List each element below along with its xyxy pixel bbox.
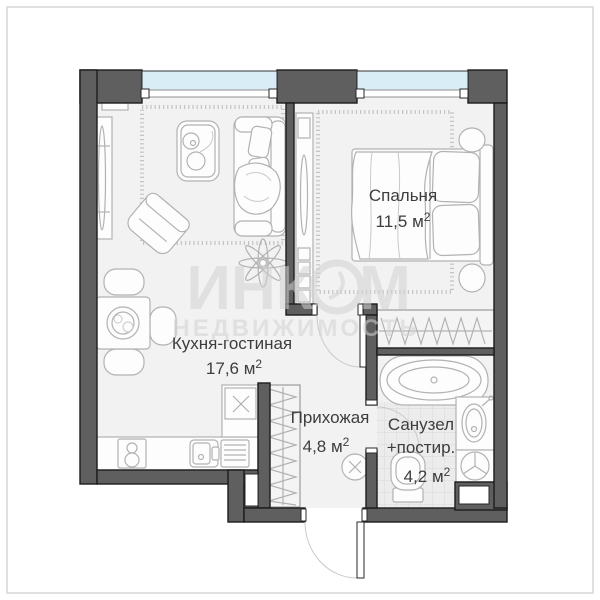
floor-plan-page: Кухня-гостиная 17,6 м2 Спальня 11,5 м2 П… (0, 0, 600, 600)
bedroom-area: 11,5 м2 (376, 210, 431, 231)
dining-chair (104, 269, 144, 295)
faucet (212, 447, 219, 460)
window-living (141, 71, 277, 98)
dining-table (96, 297, 150, 349)
living-room-area: 17,6 м2 (206, 357, 263, 378)
bath-name2: +постир. (387, 438, 456, 457)
hall-ceiling-lamp (342, 454, 368, 480)
floor-plan: Кухня-гостиная 17,6 м2 Спальня 11,5 м2 П… (0, 0, 600, 600)
wall-left (80, 70, 97, 484)
wall-top-middle-block (277, 70, 357, 103)
sofa (234, 117, 286, 236)
wall-kitchen-hall-divider (258, 383, 270, 508)
pillow (432, 151, 480, 203)
dining-chair (104, 349, 144, 375)
wall-bottom-entrance-left (244, 508, 305, 522)
nightstand (459, 128, 485, 152)
hall-name: Прихожая (291, 408, 370, 427)
hall-wardrobe (266, 385, 300, 507)
stove (118, 439, 146, 468)
watermark: ИНК М НЕДВИЖИМОСТЬ (172, 254, 419, 342)
pillow (432, 204, 480, 256)
dish-rack (221, 440, 249, 467)
bed-blanket (352, 152, 432, 259)
wall-step (228, 470, 244, 522)
kitchen-sink (190, 440, 219, 467)
window-bedroom (356, 71, 468, 98)
door-leaf (357, 522, 364, 578)
sofa-pillow (248, 125, 273, 158)
entrance-door (301, 509, 367, 578)
duct-shaft-left (245, 474, 258, 506)
bedroom-name: Спальня (369, 186, 437, 205)
washing-machine (456, 450, 494, 482)
wall-hall-bath-lower (366, 450, 377, 508)
sofa-blanket (235, 163, 281, 214)
bath-area: 4,2 м2 (404, 465, 451, 486)
watermark-subtitle: НЕДВИЖИМОСТЬ (172, 315, 419, 342)
nightstand (459, 264, 485, 292)
duct-shaft-right (459, 486, 489, 504)
coffee-table (177, 121, 219, 181)
wall-right (494, 103, 507, 508)
headboard (480, 145, 493, 265)
kitchen-tall-unit (222, 385, 258, 437)
bath-name: Санузел (388, 415, 454, 434)
wall-top-right-block (468, 70, 507, 103)
hall-area: 4,8 м2 (303, 435, 350, 456)
wall-closet-bath (377, 348, 494, 355)
door-swing (305, 522, 357, 578)
watermark-brand-left: ИНК (186, 254, 313, 323)
watermark-brand-right: М (359, 254, 411, 323)
